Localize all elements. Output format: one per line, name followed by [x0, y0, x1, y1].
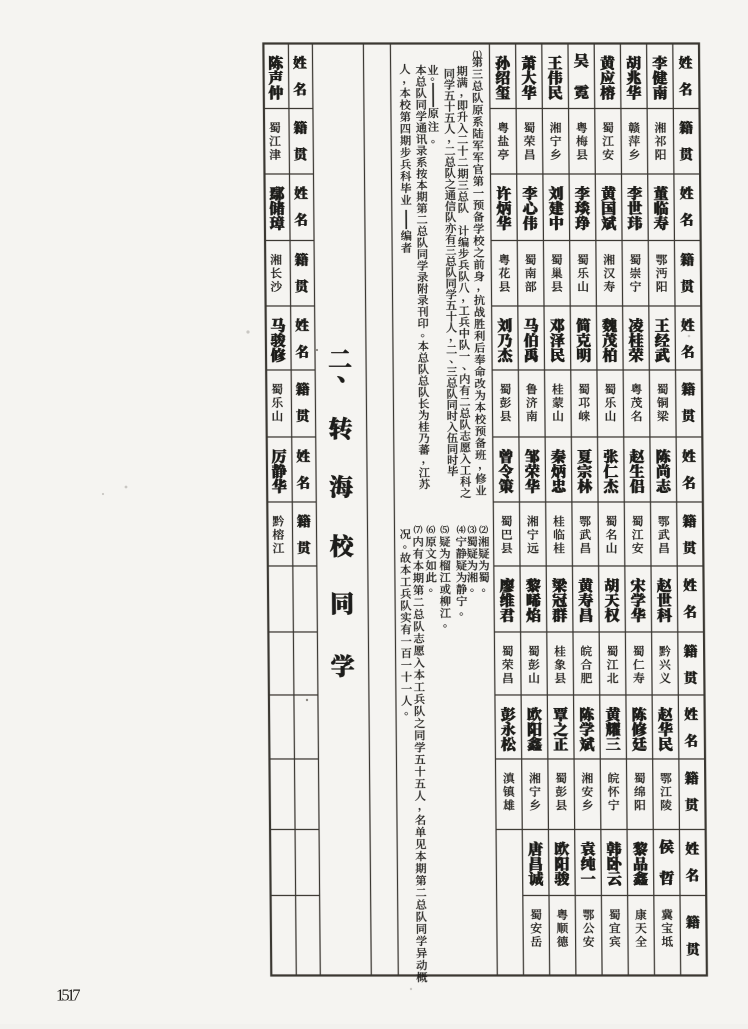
svg-text:1517: 1517 — [56, 986, 81, 1005]
